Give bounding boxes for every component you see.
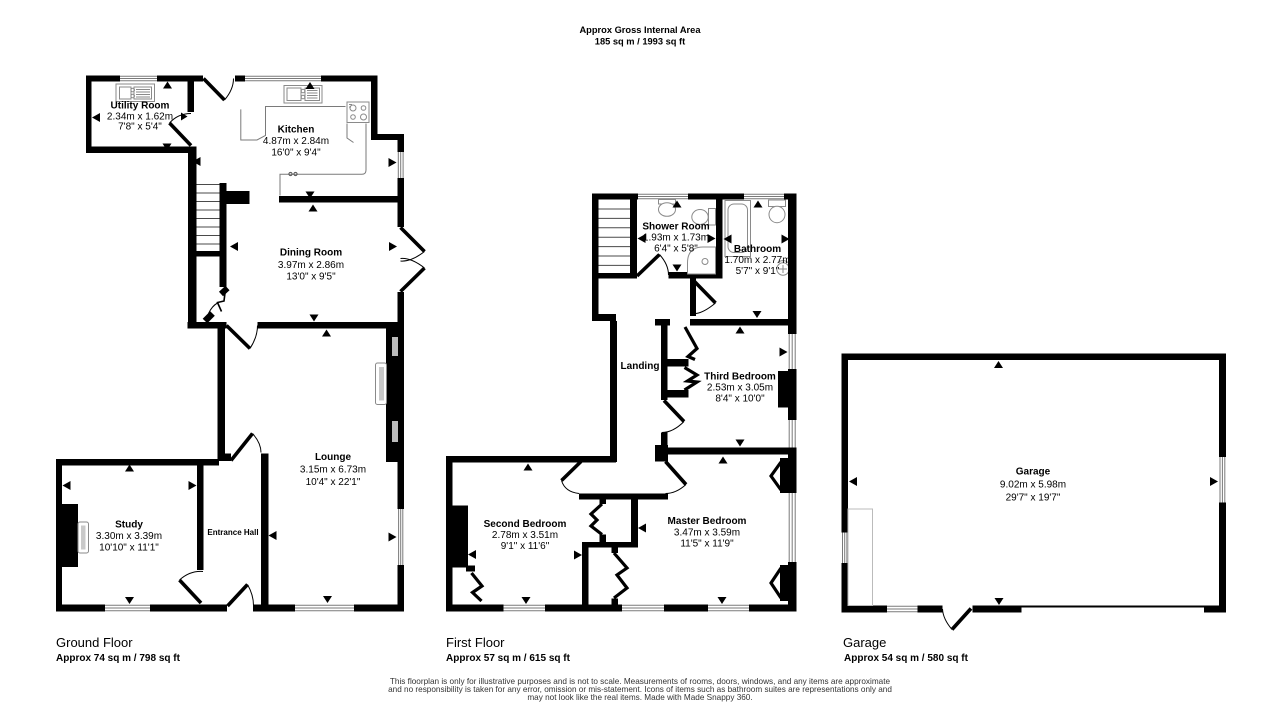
svg-text:10'4" x 22'1": 10'4" x 22'1"	[306, 477, 361, 488]
svg-text:7'8" x 5'4": 7'8" x 5'4"	[118, 122, 162, 133]
svg-text:6'4" x 5'8": 6'4" x 5'8"	[654, 244, 698, 255]
svg-text:10'10" x 11'1": 10'10" x 11'1"	[99, 543, 159, 554]
svg-text:2.53m x 3.05m: 2.53m x 3.05m	[707, 383, 773, 394]
svg-text:9'1" x 11'6": 9'1" x 11'6"	[501, 541, 550, 552]
svg-text:Approx 54 sq m / 580 sq ft: Approx 54 sq m / 580 sq ft	[844, 653, 969, 664]
svg-text:Garage: Garage	[1016, 467, 1051, 478]
svg-text:2.78m x 3.51m: 2.78m x 3.51m	[492, 530, 558, 541]
svg-text:Study: Study	[115, 520, 143, 531]
svg-text:9.02m x 5.98m: 9.02m x 5.98m	[1000, 480, 1066, 491]
svg-text:Entrance Hall: Entrance Hall	[207, 528, 258, 537]
svg-text:may not look like the real ite: may not look like the real items. Made w…	[527, 693, 752, 702]
svg-text:3.97m x 2.86m: 3.97m x 2.86m	[278, 260, 344, 271]
svg-text:11'5" x 11'9": 11'5" x 11'9"	[680, 539, 734, 550]
svg-text:Approx 74 sq m / 798 sq ft: Approx 74 sq m / 798 sq ft	[56, 653, 181, 664]
svg-text:185 sq m / 1993 sq ft: 185 sq m / 1993 sq ft	[595, 37, 685, 47]
svg-text:16'0" x 9'4": 16'0" x 9'4"	[271, 148, 321, 159]
svg-text:13'0" x 9'5": 13'0" x 9'5"	[286, 272, 336, 283]
svg-text:5'7" x 9'1": 5'7" x 9'1"	[736, 266, 780, 277]
svg-text:Lounge: Lounge	[315, 452, 352, 463]
svg-text:Master Bedroom: Master Bedroom	[668, 516, 747, 527]
svg-text:Second Bedroom: Second Bedroom	[484, 519, 567, 530]
svg-text:Utility Room: Utility Room	[111, 101, 170, 112]
svg-text:Bathroom: Bathroom	[734, 244, 781, 255]
svg-text:3.30m x 3.39m: 3.30m x 3.39m	[96, 531, 162, 542]
svg-text:1.93m x 1.73m: 1.93m x 1.73m	[643, 233, 709, 244]
svg-text:4.87m x 2.84m: 4.87m x 2.84m	[263, 136, 329, 147]
svg-text:First Floor: First Floor	[446, 635, 505, 650]
svg-text:Kitchen: Kitchen	[278, 125, 315, 136]
svg-text:Shower Room: Shower Room	[642, 222, 709, 233]
svg-text:Landing: Landing	[621, 361, 660, 372]
svg-text:Third Bedroom: Third Bedroom	[704, 372, 776, 383]
svg-text:Approx 57 sq m / 615 sq ft: Approx 57 sq m / 615 sq ft	[446, 653, 571, 664]
svg-text:29'7" x 19'7": 29'7" x 19'7"	[1006, 493, 1061, 504]
svg-text:Ground Floor: Ground Floor	[56, 635, 133, 650]
svg-text:8'4" x 10'0": 8'4" x 10'0"	[715, 394, 765, 405]
svg-text:Garage: Garage	[843, 635, 886, 650]
svg-text:Approx Gross Internal Area: Approx Gross Internal Area	[579, 25, 701, 35]
svg-text:1.70m x 2.77m: 1.70m x 2.77m	[724, 255, 790, 266]
svg-text:3.47m x 3.59m: 3.47m x 3.59m	[674, 528, 740, 539]
svg-text:3.15m x 6.73m: 3.15m x 6.73m	[300, 465, 366, 476]
svg-text:Dining Room: Dining Room	[280, 248, 342, 259]
